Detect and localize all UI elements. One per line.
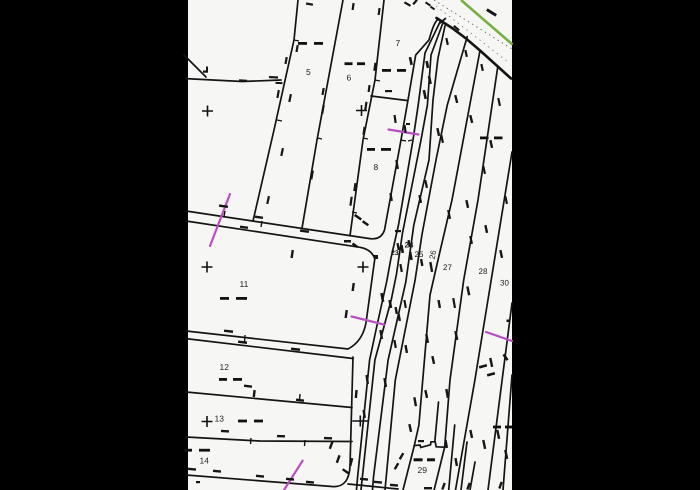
svg-text:28: 28 [479,267,488,276]
svg-text:23: 23 [391,250,399,257]
svg-text:13: 13 [215,414,225,424]
svg-text:6: 6 [347,73,352,83]
svg-text:5: 5 [306,67,311,77]
svg-text:27: 27 [443,263,452,272]
svg-text:12: 12 [220,362,230,372]
svg-text:8: 8 [374,162,379,172]
svg-text:29: 29 [418,465,428,475]
svg-text:7: 7 [396,38,401,48]
svg-text:11: 11 [240,279,249,289]
svg-text:25: 25 [415,250,424,259]
svg-text:30: 30 [500,279,509,288]
svg-text:14: 14 [200,456,210,466]
